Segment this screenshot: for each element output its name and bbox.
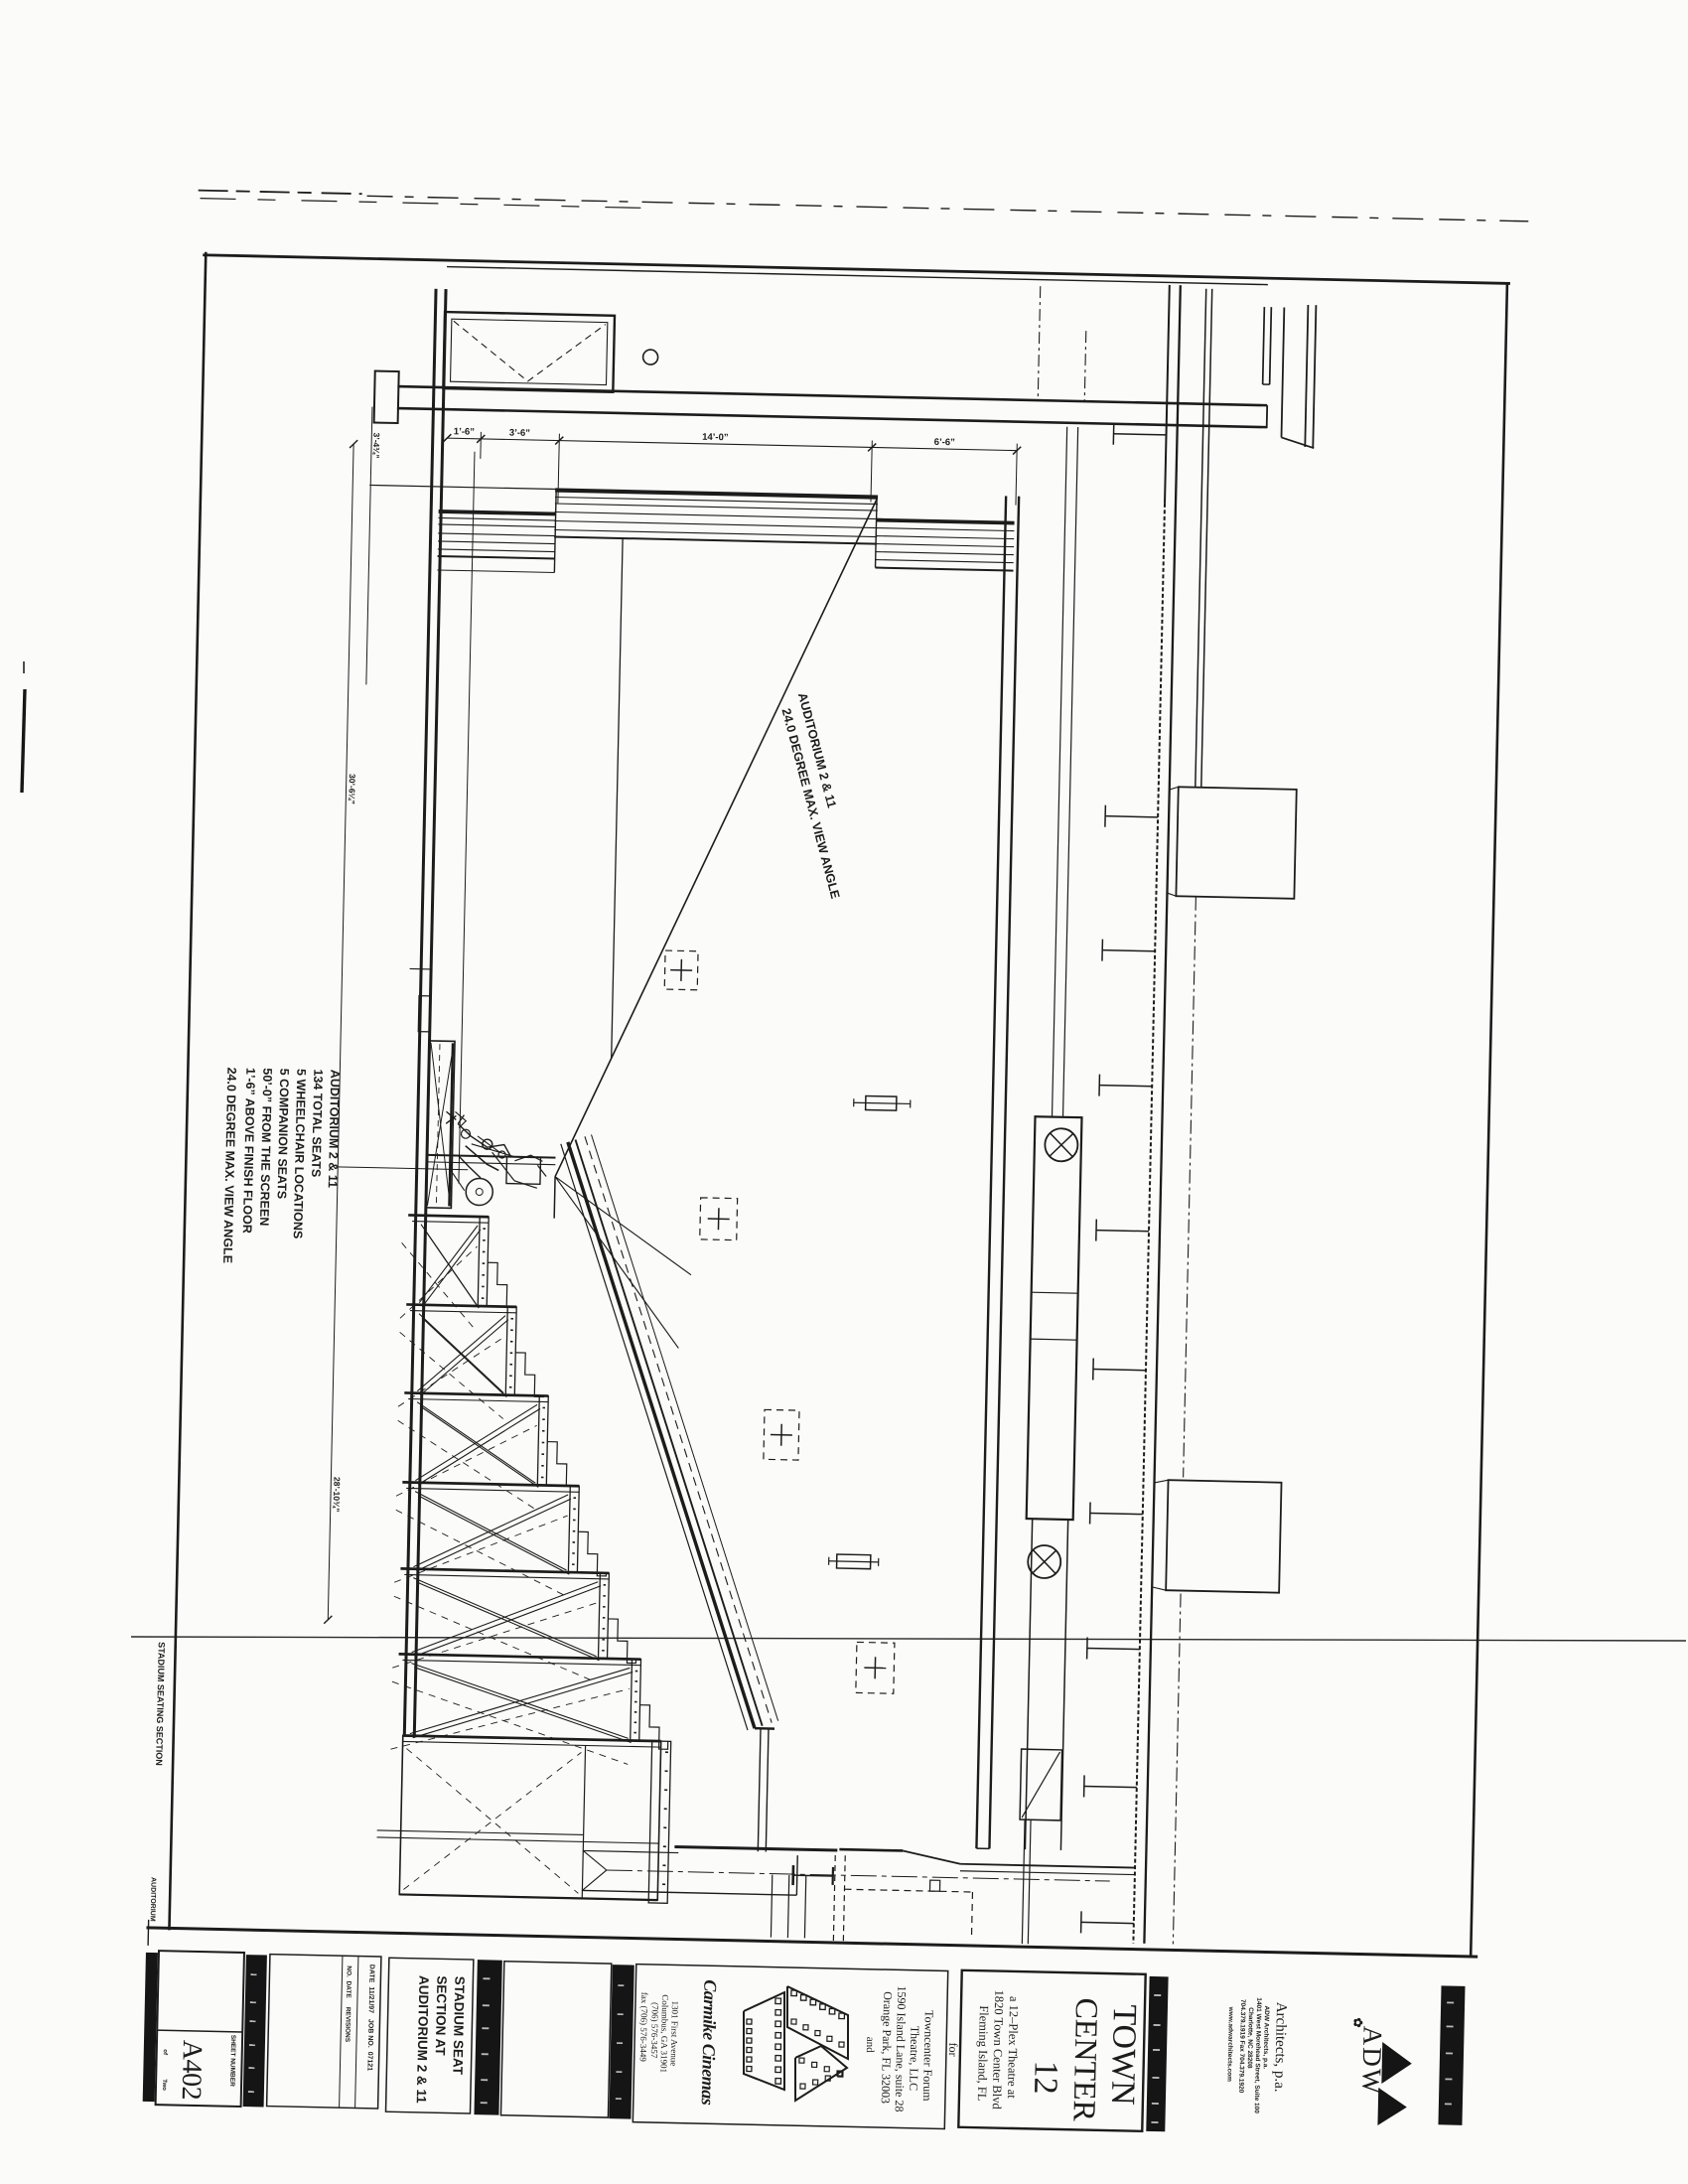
- svg-text:ADW Architects, p.a.: ADW Architects, p.a.: [1262, 2005, 1270, 2069]
- svg-text:6’-6”: 6’-6”: [934, 437, 956, 448]
- svg-text:SHEET NUMBER: SHEET NUMBER: [228, 2035, 236, 2087]
- svg-text:AUDITORIUM: AUDITORIUM: [149, 1877, 157, 1922]
- svg-text:AUDITORIUM 2 & 11: AUDITORIUM 2 & 11: [414, 1975, 432, 2105]
- svg-text:Charlotte, NC 28208: Charlotte, NC 28208: [1246, 2007, 1254, 2069]
- svg-text:✿: ✿: [1351, 2017, 1365, 2027]
- svg-text:134 TOTAL SEATS: 134 TOTAL SEATS: [309, 1069, 325, 1177]
- svg-text:14’-0”: 14’-0”: [702, 432, 729, 444]
- svg-text:Theatre, LLC: Theatre, LLC: [907, 2026, 921, 2092]
- svg-text:CENTER: CENTER: [1066, 1997, 1105, 2122]
- svg-text:and: and: [864, 2037, 876, 2054]
- svg-text:Fleming Island, FL: Fleming Island, FL: [975, 2005, 991, 2101]
- svg-text:3’-6”: 3’-6”: [509, 427, 531, 438]
- svg-text:Architects, p.a.: Architects, p.a.: [1271, 2002, 1289, 2093]
- svg-text:SECTION AT: SECTION AT: [433, 1975, 450, 2056]
- svg-text:28’-10¾”: 28’-10¾”: [332, 1477, 343, 1513]
- svg-text:STADIUM SEAT: STADIUM SEAT: [450, 1976, 467, 2076]
- svg-text:Orange Park, FL 32003: Orange Park, FL 32003: [879, 1991, 895, 2104]
- svg-text:Towncenter Forum: Towncenter Forum: [920, 2010, 936, 2102]
- svg-text:5 COMPANION SEATS: 5 COMPANION SEATS: [275, 1069, 292, 1200]
- svg-text:(706) 576-3457: (706) 576-3457: [649, 2002, 660, 2059]
- svg-text:Two: Two: [161, 2079, 167, 2091]
- svg-text:for: for: [946, 2042, 960, 2056]
- svg-text:1820 Town Center Blvd: 1820 Town Center Blvd: [990, 1989, 1007, 2110]
- svg-text:A402: A402: [176, 2040, 208, 2101]
- svg-text:Carmike Cinemas: Carmike Cinemas: [698, 1979, 721, 2106]
- svg-text:TOWN: TOWN: [1104, 2004, 1143, 2106]
- svg-text:AUDITORIUM 2 & 11: AUDITORIUM 2 & 11: [326, 1070, 343, 1189]
- svg-text:3’-4¾”: 3’-4¾”: [371, 432, 382, 458]
- svg-text:a 12–Plex Theatre at: a 12–Plex Theatre at: [1005, 1996, 1021, 2100]
- svg-text:30’-6¼”: 30’-6¼”: [347, 774, 357, 804]
- svg-text:fax (706) 576-3449: fax (706) 576-3449: [638, 1992, 650, 2063]
- svg-text:12: 12: [1027, 2060, 1064, 2095]
- svg-text:1’-6”: 1’-6”: [454, 426, 476, 437]
